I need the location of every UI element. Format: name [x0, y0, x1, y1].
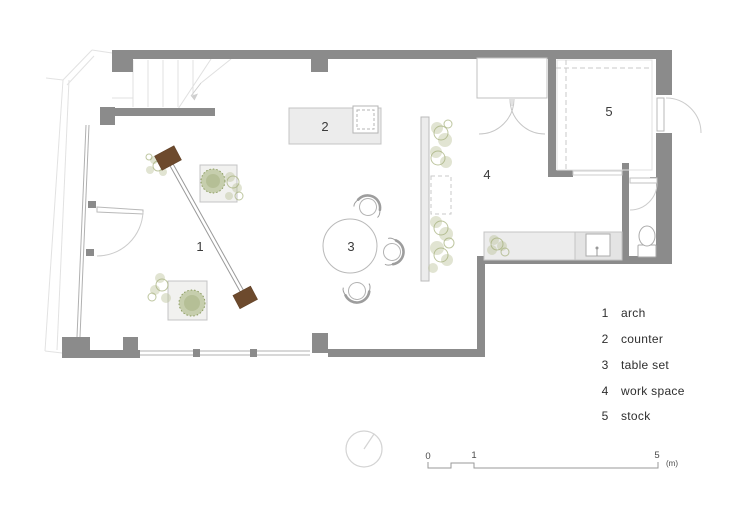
- back-counter-sink: [586, 234, 610, 256]
- scale-tick-5: 5: [654, 450, 659, 461]
- pass-through-counter: [573, 171, 622, 175]
- wall-toilet: [622, 163, 629, 264]
- display-partition: [421, 117, 429, 281]
- workspace-cabinet: [477, 58, 547, 98]
- legend-number: 2: [602, 332, 609, 346]
- legend-label: work space: [620, 384, 685, 398]
- pillar-window: [312, 333, 328, 353]
- legend-label: stock: [621, 409, 651, 423]
- window-mullion: [193, 349, 200, 357]
- area-marker-stock: 5: [605, 104, 612, 119]
- legend-number: 4: [602, 384, 609, 398]
- wall-step: [477, 256, 485, 357]
- wall-right-upper: [656, 50, 672, 95]
- door-jamb-block: [88, 201, 96, 208]
- wall-stock-divider: [548, 50, 556, 172]
- pillar-bottom-left: [62, 337, 90, 358]
- wall-right-lower: [656, 133, 672, 264]
- legend-number: 3: [602, 358, 609, 372]
- pillar-bottom-left2: [123, 337, 138, 354]
- pillar-top-mid: [311, 59, 328, 72]
- legend-row: 1 arch: [602, 306, 646, 320]
- floor-plan-page: 1 2 3 4 5 1 arch 2 counter 3 table set 4…: [0, 0, 750, 512]
- wall-under-stairs: [100, 108, 215, 116]
- scale-unit: (m): [666, 459, 678, 468]
- toilet-door-leaf: [630, 178, 657, 183]
- scale-tick-0: 0: [425, 451, 430, 462]
- wall-top: [112, 50, 672, 59]
- area-marker-arch: 1: [196, 239, 203, 254]
- door-jamb-block: [86, 249, 94, 256]
- area-marker-work-space: 4: [483, 167, 490, 182]
- area-marker-table-set: 3: [347, 239, 354, 254]
- window-mullion: [250, 349, 257, 357]
- tree-planter-b: [179, 290, 205, 316]
- area-marker-counter: 2: [321, 119, 328, 134]
- legend-label: counter: [621, 332, 663, 346]
- legend-label: table set: [621, 358, 669, 372]
- floor-plan-drawing: 1 2 3 4 5 1 arch 2 counter 3 table set 4…: [0, 0, 750, 512]
- wall-stock-divider-foot: [548, 170, 573, 177]
- toilet-tank: [638, 245, 656, 257]
- tree-planter-a: [201, 169, 225, 193]
- stock-door-leaf: [657, 98, 664, 131]
- faucet-head: [596, 247, 599, 250]
- wall-bottom-main: [328, 349, 485, 357]
- scale-tick-1: 1: [471, 450, 476, 461]
- toilet-bowl: [639, 226, 655, 246]
- pillar-stair-left: [100, 107, 115, 125]
- legend-label: arch: [621, 306, 646, 320]
- pillar-top-left: [112, 50, 133, 72]
- legend-number: 1: [602, 306, 609, 320]
- legend-number: 5: [602, 409, 609, 423]
